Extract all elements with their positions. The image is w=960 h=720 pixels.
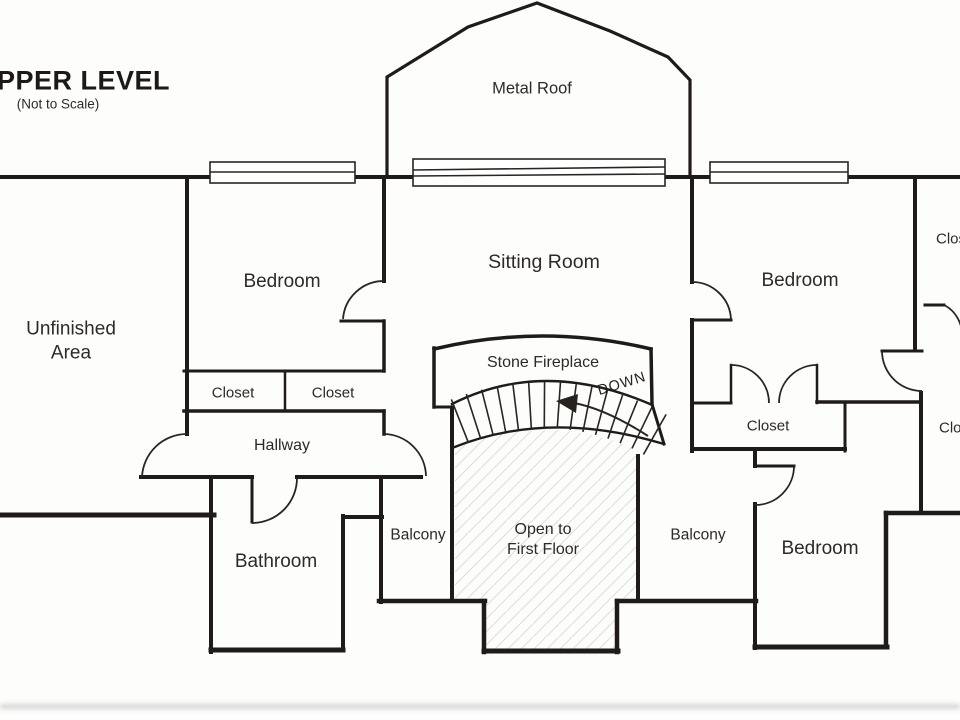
page-subtitle: (Not to Scale): [17, 97, 100, 112]
room-label-closet-hall-left: Closet: [212, 385, 255, 404]
hallway-right-door-arc: [384, 434, 426, 476]
room-label-closet-top-right: Closet: [936, 231, 960, 248]
room-label-hallway: Hallway: [254, 436, 310, 456]
window-center: [413, 159, 665, 186]
room-label-bedroom-left: Bedroom: [243, 270, 320, 294]
label-open-to-first-floor: Open to First Floor: [507, 520, 579, 560]
room-label-sitting-room: Sitting Room: [488, 250, 600, 274]
closet-double-door-left-arc: [731, 365, 769, 403]
floor-plan: PPER LEVEL (Not to Scale) Metal Roof Unf…: [0, 0, 960, 720]
closet-top-right-door-arc: [944, 305, 960, 330]
page-title: PPER LEVEL: [0, 66, 170, 97]
bedroom-right-door-arc: [692, 282, 731, 320]
room-label-closet-hall-right: Closet: [312, 385, 355, 404]
room-label-metal-roof: Metal Roof: [492, 79, 572, 100]
floor-plan-svg: [0, 0, 960, 720]
room-label-bedroom-right: Bedroom: [761, 269, 838, 293]
closet-double-door-right-arc: [779, 365, 817, 403]
room-label-bathroom: Bathroom: [235, 550, 317, 574]
bedroom-left-door-arc: [343, 281, 384, 319]
room-label-unfinished-area: Unfinished Area: [26, 317, 116, 365]
room-label-balcony-right: Balcony: [670, 525, 725, 544]
windows: [210, 159, 848, 186]
scan-artifact: [0, 704, 960, 709]
bedroom-bottom-right-door-arc: [755, 466, 794, 505]
bathroom-door-arc: [252, 478, 297, 523]
right-hall-door-arc: [882, 351, 922, 391]
room-label-closet-mid-right: Closet: [747, 418, 790, 437]
room-label-balcony-left: Balcony: [390, 525, 445, 544]
hallway-left-door-arc: [142, 434, 187, 477]
room-label-bedroom-bottom-right: Bedroom: [781, 537, 858, 561]
room-label-closet-right-edge: Closet: [939, 420, 960, 437]
label-stone-fireplace: Stone Fireplace: [487, 353, 599, 373]
